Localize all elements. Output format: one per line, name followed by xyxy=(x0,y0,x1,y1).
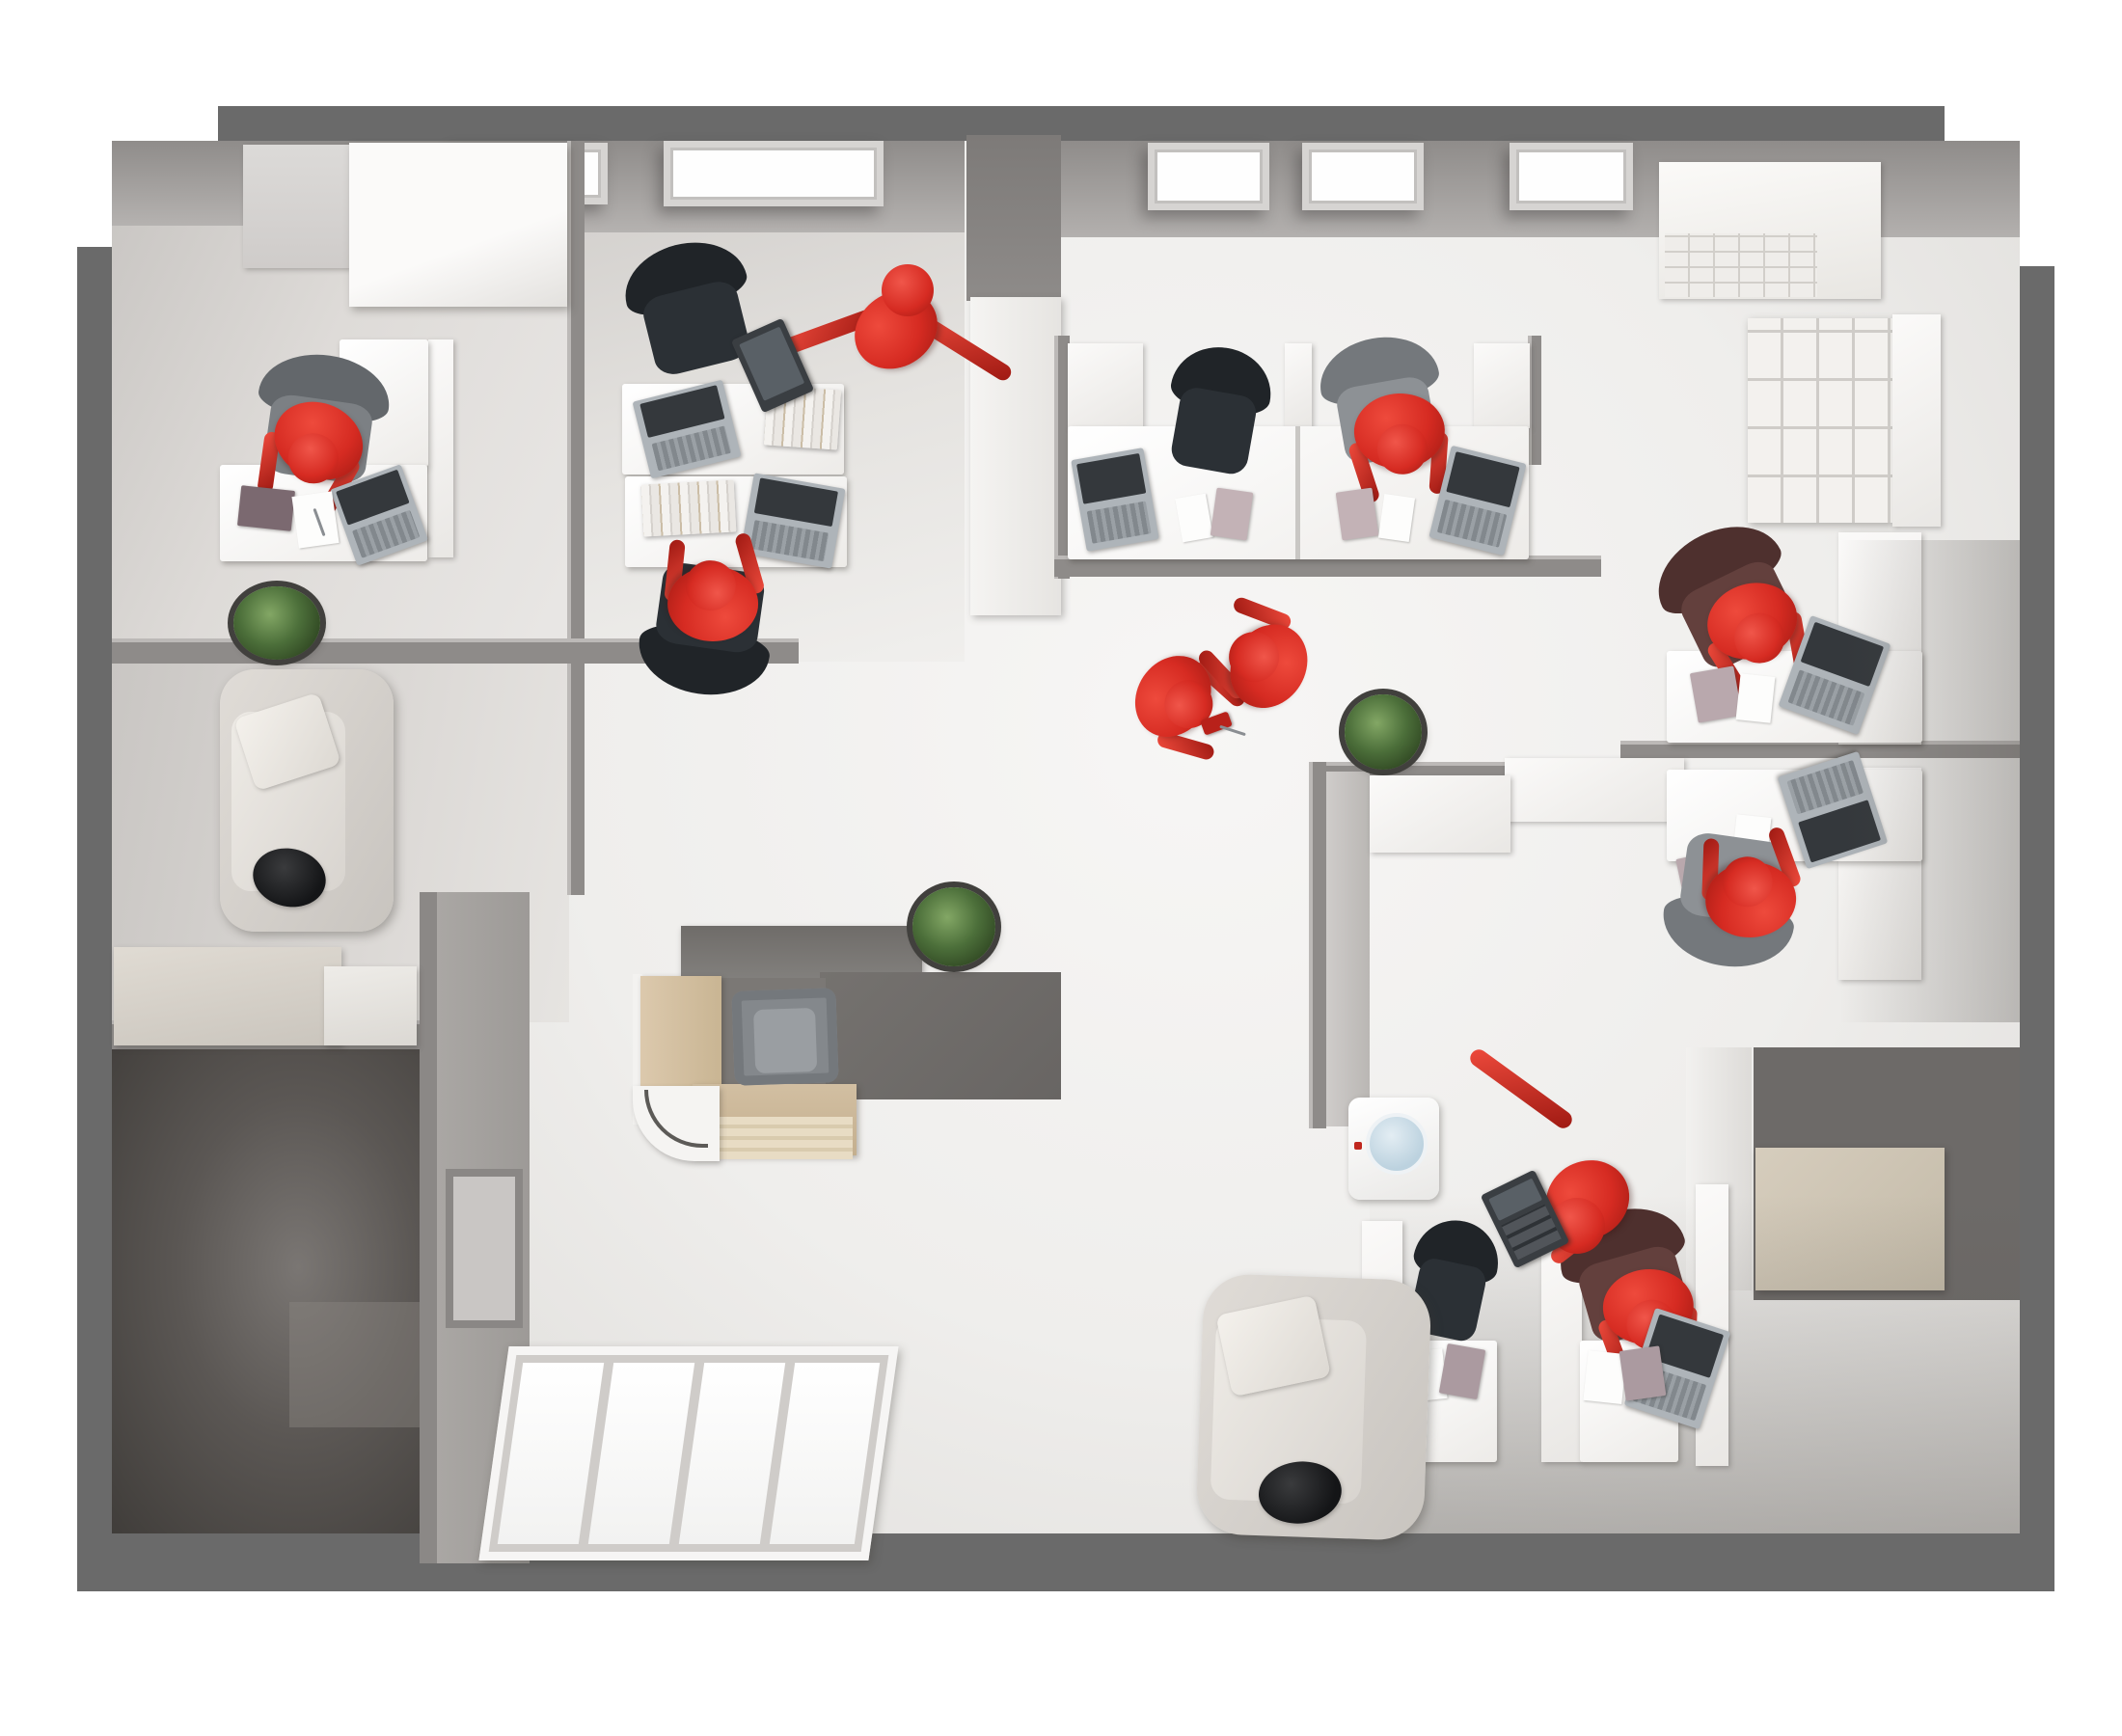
closet-private-office xyxy=(349,143,567,307)
bookshelf-cubby-side xyxy=(1892,314,1941,527)
paper-open-right xyxy=(1378,494,1415,542)
wall-bay-divider xyxy=(1620,741,2020,758)
bench-lounge xyxy=(114,947,341,1045)
chair-open-empty xyxy=(1153,346,1281,487)
shelf-open-ne xyxy=(1665,233,1817,297)
skylight-open-office-2 xyxy=(1302,143,1424,210)
notebook-open-left xyxy=(1211,488,1254,541)
door-pane xyxy=(588,1363,694,1544)
floor-storage-dark xyxy=(112,1049,422,1533)
plant-private-office xyxy=(233,586,320,660)
person-team-stander xyxy=(772,243,974,436)
sofa-workroom xyxy=(1195,1273,1431,1541)
water-cooler-label xyxy=(1354,1142,1362,1150)
person-bay-b xyxy=(1669,812,1834,985)
wall-workroom-west-face xyxy=(1326,772,1370,1126)
desk-open-divider xyxy=(1295,426,1300,559)
desk-open-return-mid xyxy=(1285,343,1312,428)
wall-lounge-center xyxy=(567,664,585,895)
paper-private-office xyxy=(291,491,339,548)
plant-reception xyxy=(912,887,995,966)
paper-bay-a xyxy=(1736,673,1776,723)
closet-shelf-left xyxy=(243,145,349,268)
notebook-private-office xyxy=(237,485,295,531)
reception-counter-return xyxy=(820,972,1061,1099)
plant-center xyxy=(1345,694,1422,770)
skylight-team-room xyxy=(664,141,884,206)
desk-open-return-right xyxy=(1474,343,1530,428)
wall-openoffice-stub-right xyxy=(1528,336,1541,465)
office-floor-plan xyxy=(0,0,2122,1736)
armchair-cushion xyxy=(753,1008,817,1073)
reception-wood-south-inner xyxy=(710,1117,853,1159)
entrance-door xyxy=(478,1346,898,1560)
door-pane xyxy=(679,1363,785,1544)
reception-armchair xyxy=(731,988,838,1086)
bookshelf-cubby xyxy=(1748,318,1892,523)
storage-inner-wall xyxy=(289,1302,424,1427)
door-pane xyxy=(498,1363,604,1544)
cabinet-bay-b-2 xyxy=(1370,775,1510,853)
cabinet-lounge-box xyxy=(324,966,417,1045)
skylight-open-office-3 xyxy=(1510,143,1633,210)
desk-private-side-panel xyxy=(428,339,453,557)
notebook-wr-right xyxy=(1619,1345,1667,1400)
wall-hall-window xyxy=(446,1169,523,1328)
skylight-open-office-1 xyxy=(1148,143,1269,210)
person-team-sitter xyxy=(636,521,791,685)
wall-workroom-west xyxy=(1309,762,1326,1128)
notebook-open-right xyxy=(1336,488,1379,541)
wall-void-wood-cap xyxy=(1755,1148,1945,1290)
water-cooler xyxy=(1348,1098,1439,1200)
water-cooler-bottle xyxy=(1366,1113,1428,1175)
laptop-open-left xyxy=(1071,448,1159,552)
cabinet-bay-b-1 xyxy=(1505,758,1684,822)
door-pane xyxy=(770,1363,880,1544)
wall-team-open-block xyxy=(966,135,1061,301)
cabinet-team-open xyxy=(970,297,1061,615)
desk-open-return-left xyxy=(1068,343,1143,428)
wall-office-team xyxy=(567,141,585,662)
notebook-bay-a xyxy=(1690,665,1742,722)
sofa-lounge xyxy=(220,669,394,932)
